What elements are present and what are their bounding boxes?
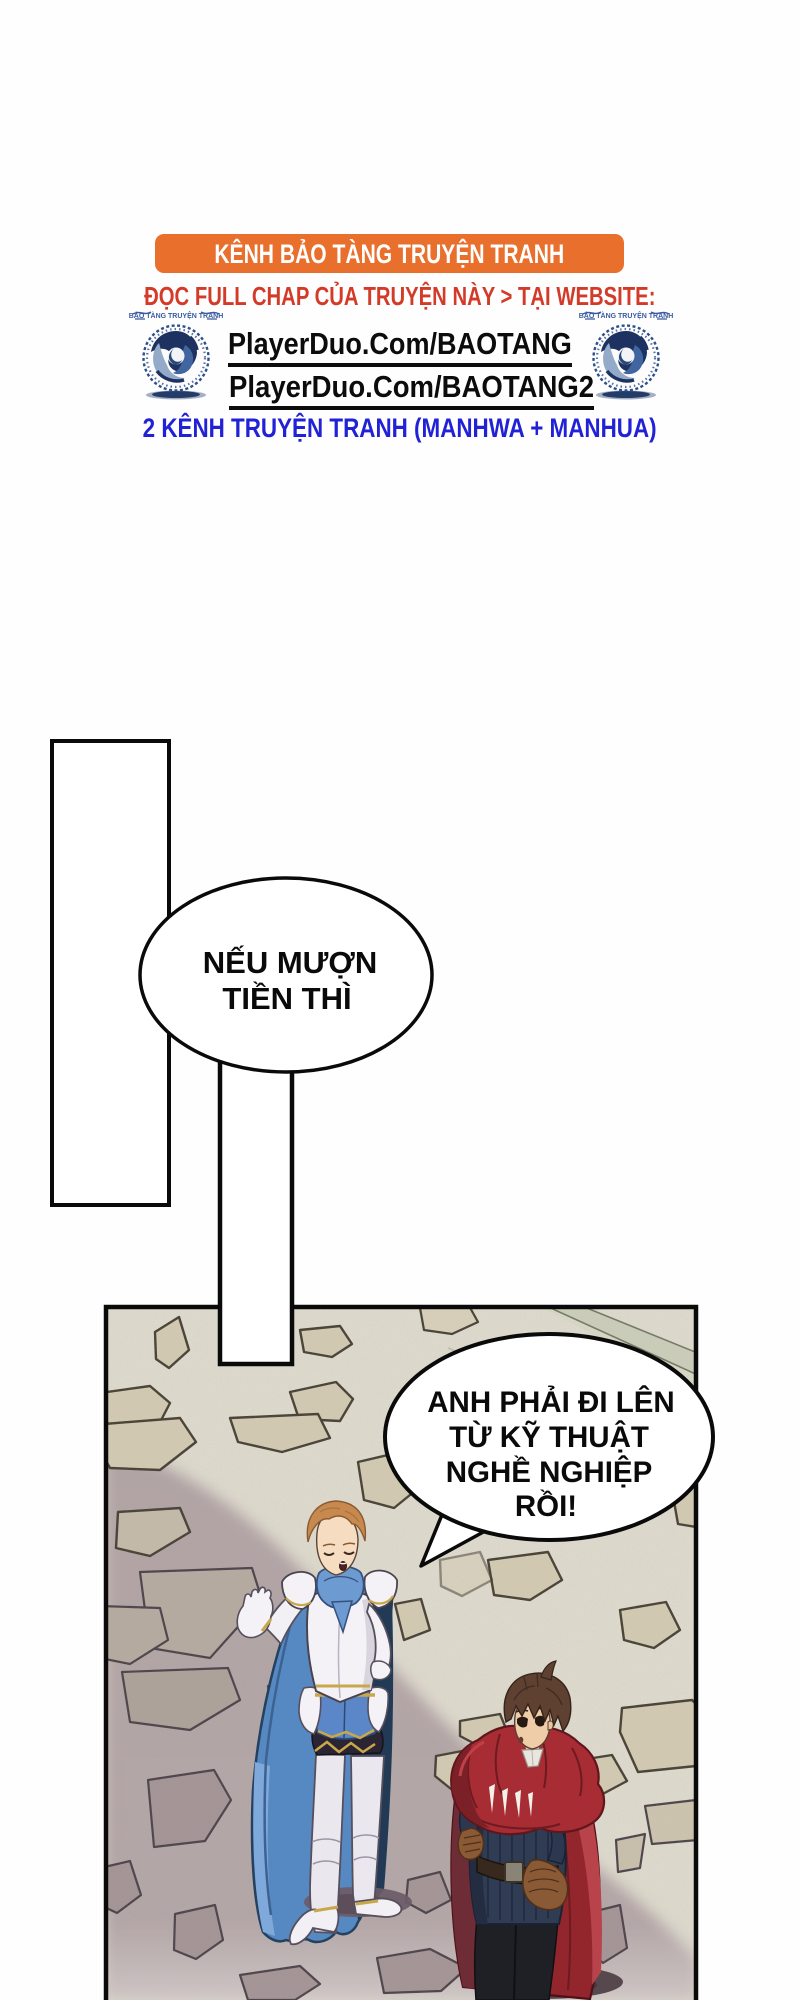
svg-text:TIỀN THÌ: TIỀN THÌ <box>222 981 351 1016</box>
svg-text:TỪ KỸ THUẬT: TỪ KỸ THUẬT <box>449 1420 649 1454</box>
svg-text:ANH PHẢI ĐI LÊN: ANH PHẢI ĐI LÊN <box>427 1385 674 1419</box>
svg-text:NẾU MƯỢN: NẾU MƯỢN <box>203 945 377 980</box>
svg-text:NGHỀ NGHIỆP: NGHỀ NGHIỆP <box>446 1455 653 1489</box>
svg-text:RỒI!: RỒI! <box>515 1489 577 1523</box>
